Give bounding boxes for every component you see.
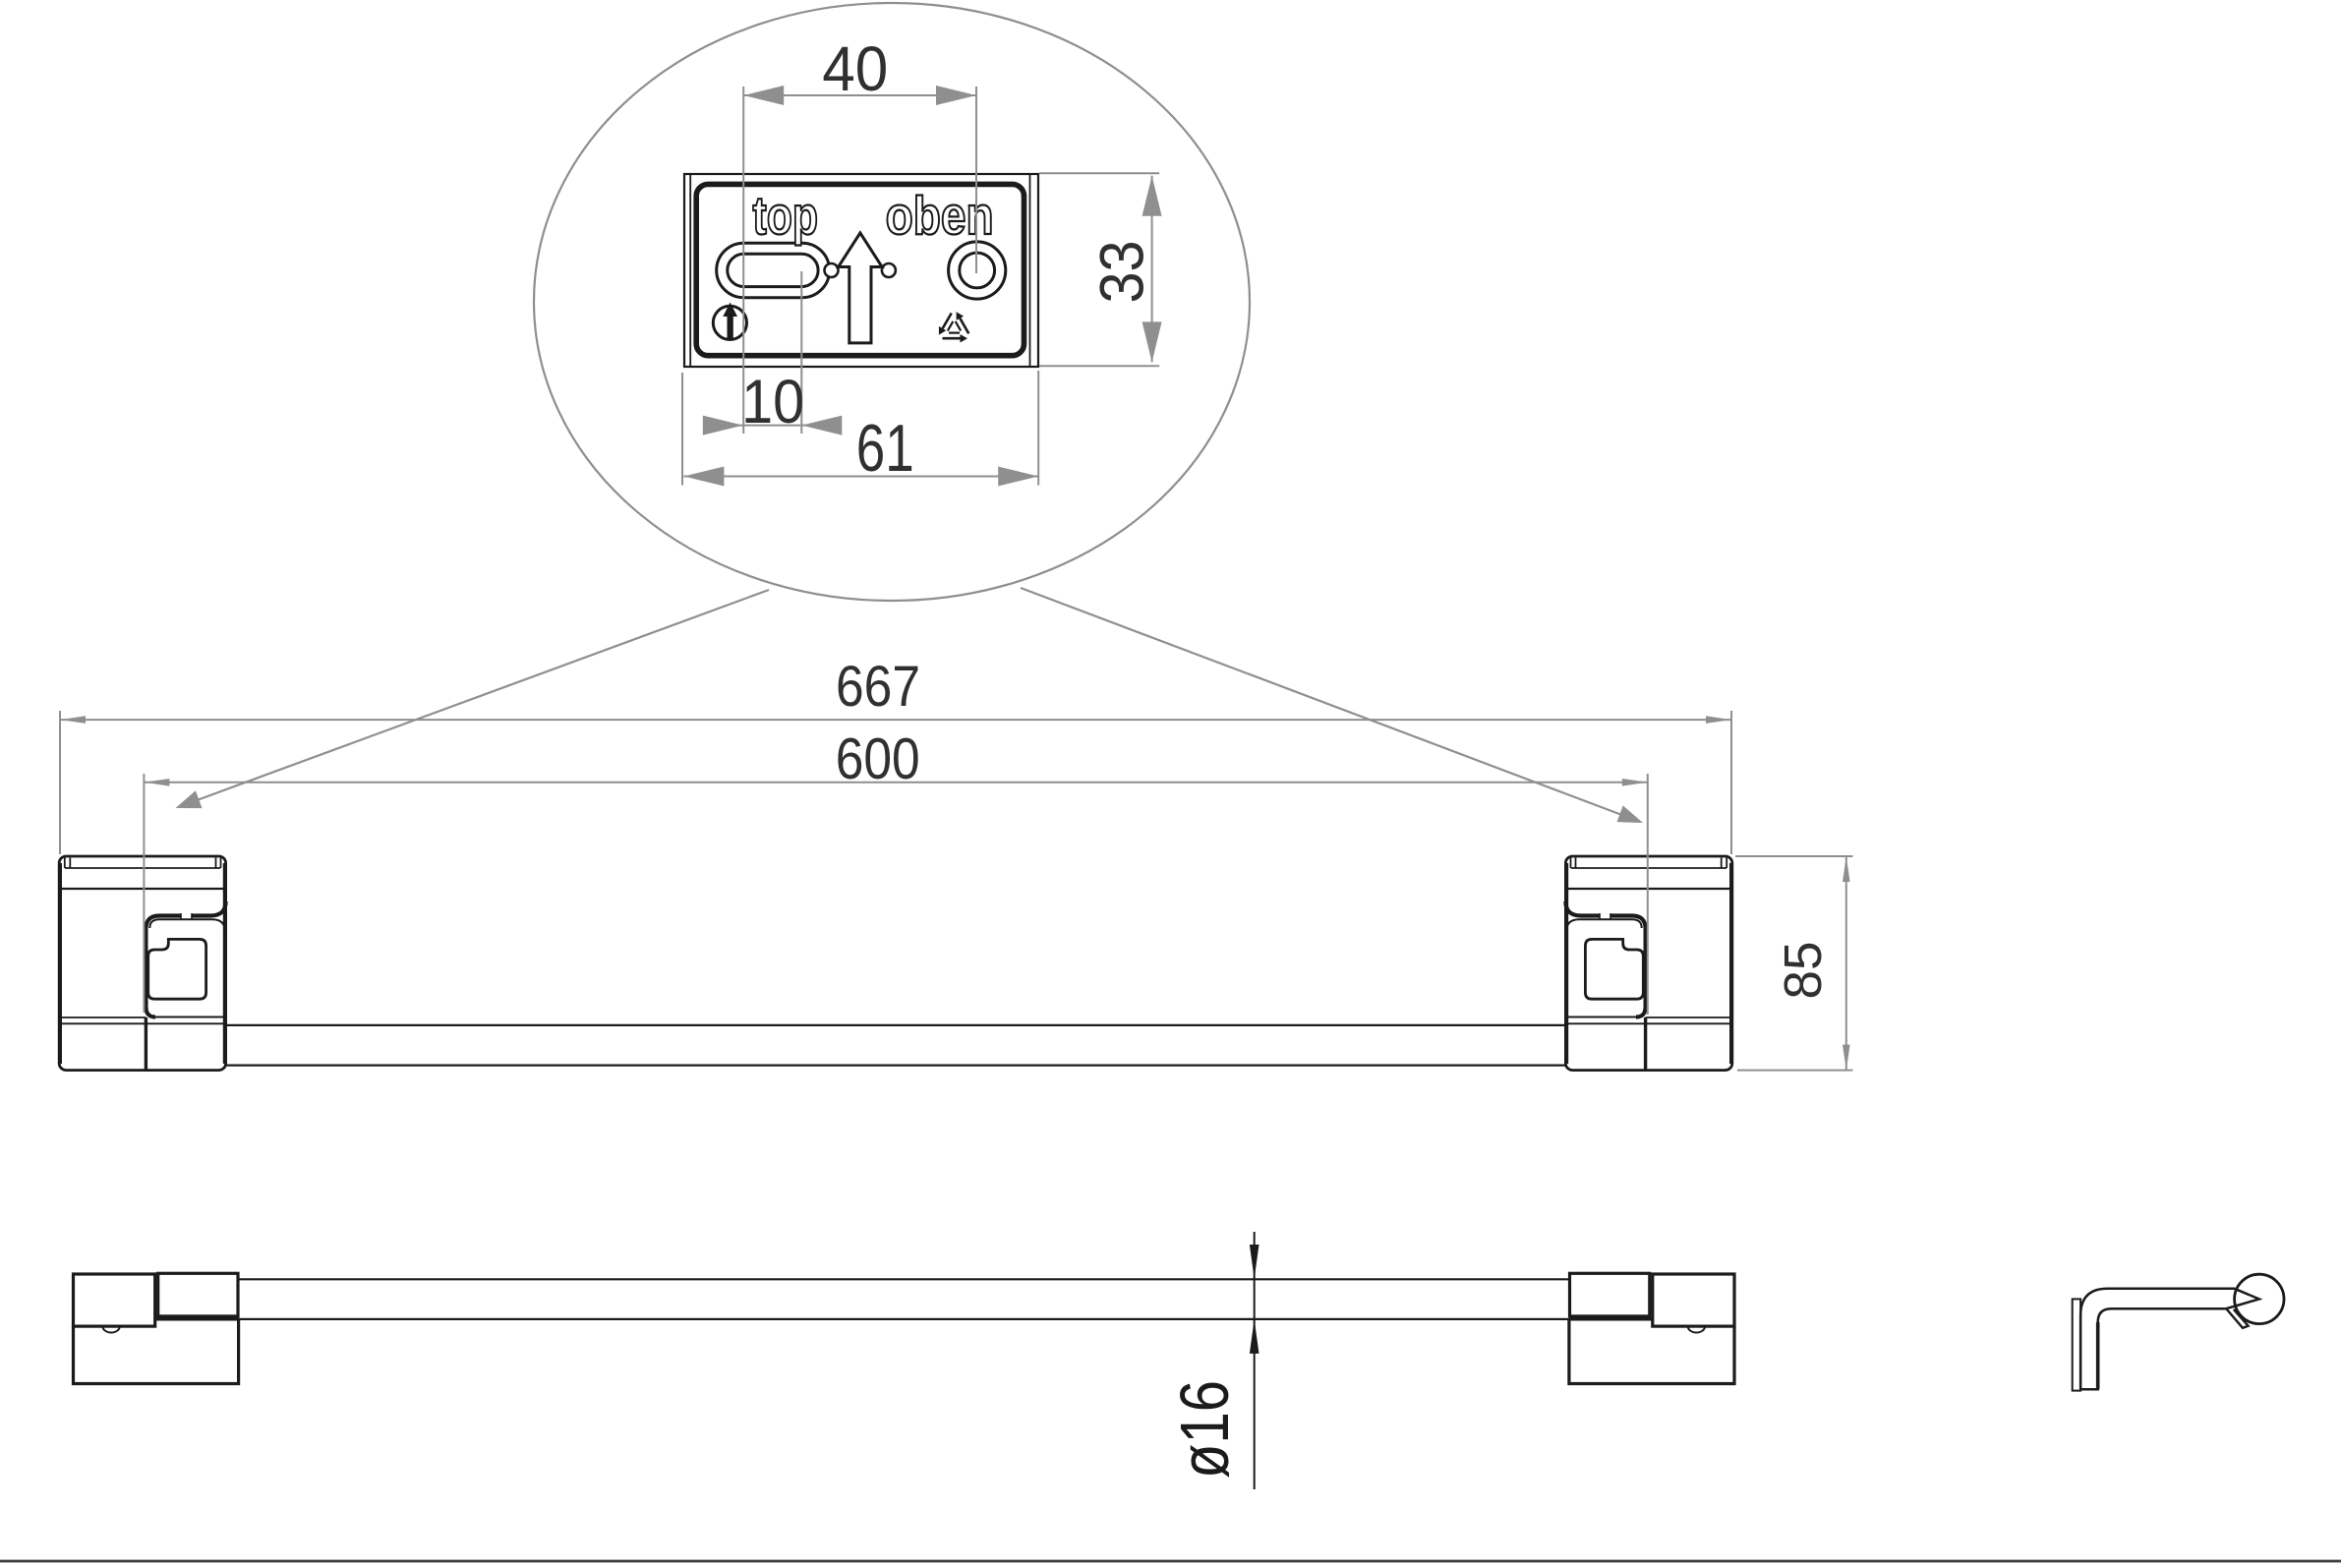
svg-text:85: 85 [1774,942,1833,1000]
svg-text:10: 10 [741,368,804,436]
svg-text:oben: oben [886,185,994,246]
svg-text:top: top [753,185,819,246]
svg-text:40: 40 [822,33,888,104]
svg-text:667: 667 [836,655,920,719]
svg-text:61: 61 [856,411,914,486]
svg-text:33: 33 [1088,241,1157,304]
svg-text:600: 600 [836,726,920,791]
svg-text:ø16: ø16 [1166,1380,1243,1479]
